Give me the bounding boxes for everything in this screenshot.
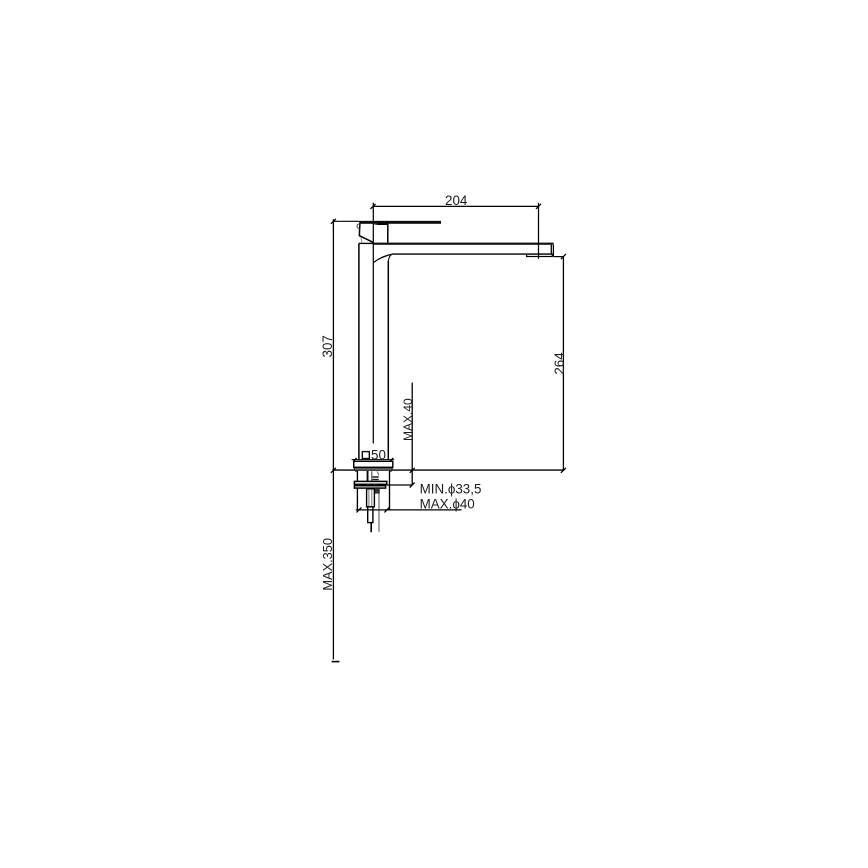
svg-text:MAX.40: MAX.40 — [401, 398, 415, 441]
svg-text:204: 204 — [445, 193, 468, 208]
svg-text:MAX.350: MAX.350 — [320, 538, 335, 591]
svg-text:MAX.ϕ40: MAX.ϕ40 — [420, 497, 475, 512]
svg-text:MIN.ϕ33,5: MIN.ϕ33,5 — [420, 482, 482, 497]
svg-text:50: 50 — [371, 447, 386, 462]
svg-text:307: 307 — [320, 335, 335, 357]
svg-text:264: 264 — [552, 352, 567, 375]
